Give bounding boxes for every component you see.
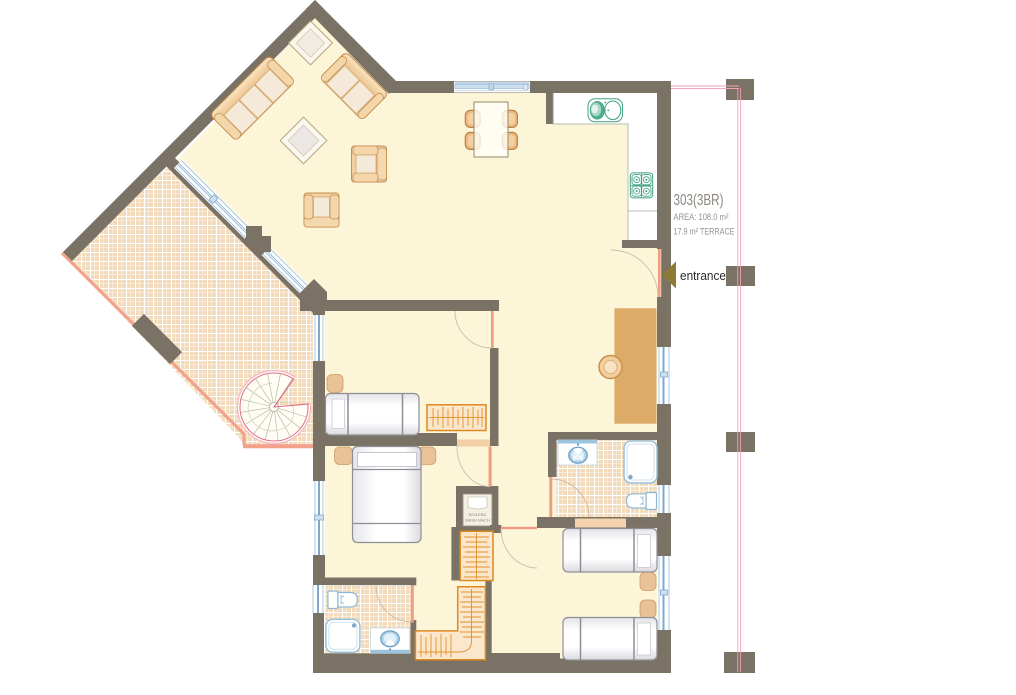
svg-text:AREA: 108.0 m²: AREA: 108.0 m²: [674, 212, 729, 223]
svg-text:303(3BR): 303(3BR): [674, 192, 724, 209]
svg-text:WASH MACH: WASH MACH: [465, 518, 490, 523]
svg-text:17.9 m² TERRACE: 17.9 m² TERRACE: [674, 227, 735, 238]
svg-text:entrance: entrance: [680, 269, 726, 283]
svg-text:BOILER&: BOILER&: [469, 512, 487, 517]
